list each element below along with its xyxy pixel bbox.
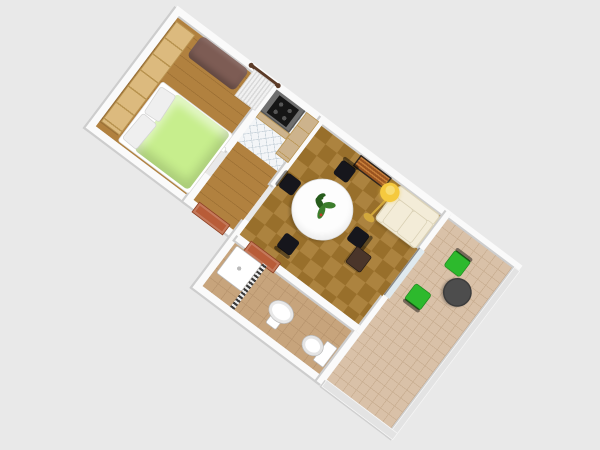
plant-flower: [310, 203, 315, 208]
plant-flower: [322, 195, 328, 201]
plant-flower: [326, 208, 332, 214]
scene-background: [0, 0, 600, 450]
apartment-plan: [47, 6, 522, 438]
lamp-pole: [370, 200, 387, 217]
